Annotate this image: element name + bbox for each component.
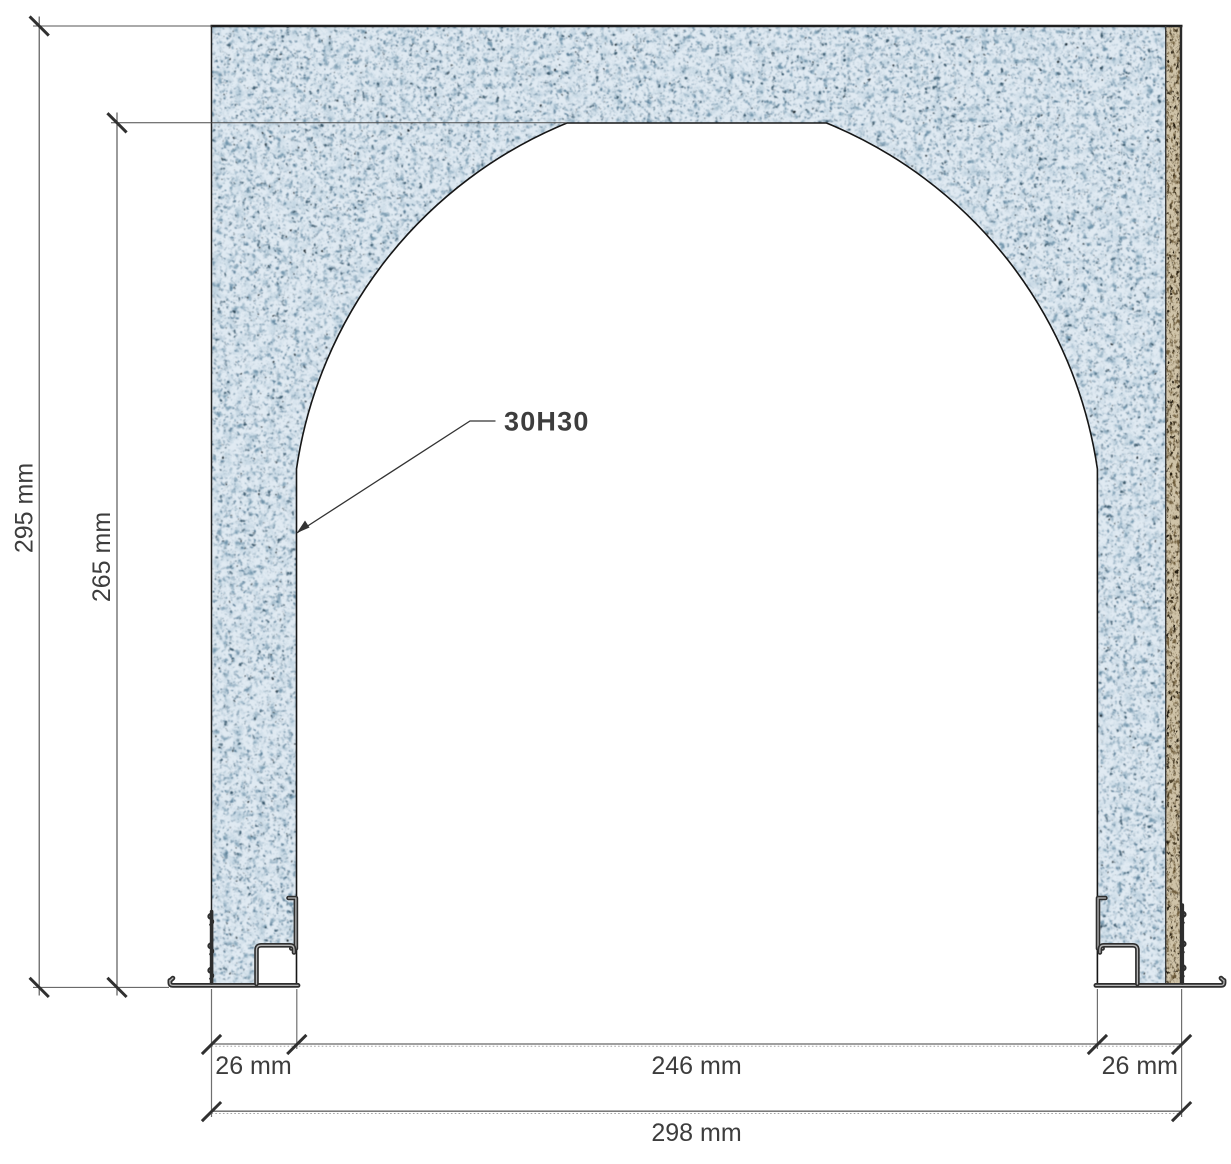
svg-text:295 mm: 295 mm xyxy=(11,463,39,553)
svg-text:298 mm: 298 mm xyxy=(651,1119,741,1147)
svg-text:265 mm: 265 mm xyxy=(88,512,116,602)
svg-text:30H30: 30H30 xyxy=(504,407,590,437)
svg-text:246 mm: 246 mm xyxy=(651,1052,741,1080)
svg-text:26 mm: 26 mm xyxy=(1102,1052,1178,1080)
svg-text:26 mm: 26 mm xyxy=(215,1052,291,1080)
